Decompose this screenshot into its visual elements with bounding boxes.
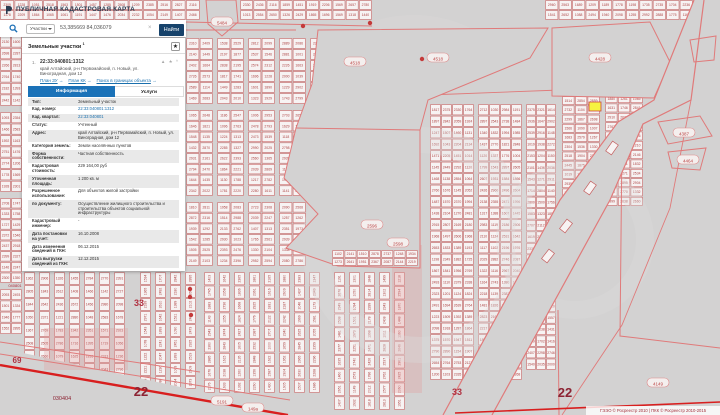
svg-text:2080: 2080 [282,259,290,263]
svg-text:2793: 2793 [264,124,272,128]
svg-text:2573: 2573 [202,75,210,79]
svg-text:2751: 2751 [2,150,10,154]
svg-text:2299: 2299 [565,117,573,121]
svg-text:2133: 2133 [220,227,228,231]
svg-text:2052: 2052 [465,188,473,192]
svg-text:2330: 2330 [243,3,251,7]
svg-text:1934: 1934 [408,252,416,256]
svg-text:2984: 2984 [502,108,510,112]
svg-text:2854: 2854 [577,99,585,103]
svg-text:2870: 2870 [202,146,210,150]
svg-text:1198: 1198 [629,3,636,7]
svg-text:1686: 1686 [313,382,317,390]
svg-text:2904: 2904 [633,181,641,185]
svg-text:1538: 1538 [220,42,228,46]
svg-text:1362: 1362 [26,277,34,281]
svg-text:1893: 1893 [174,353,178,361]
svg-text:2280: 2280 [251,189,259,193]
svg-text:1546: 1546 [13,233,21,237]
svg-text:2574: 2574 [251,64,259,68]
svg-text:1765: 1765 [251,238,259,242]
svg-text:1951: 1951 [398,399,402,407]
svg-text:1642: 1642 [159,314,163,322]
svg-text:2112: 2112 [537,224,544,228]
svg-text:1392: 1392 [238,382,242,390]
svg-text:1262: 1262 [295,216,303,220]
svg-text:1904: 1904 [283,369,287,377]
svg-text:2338: 2338 [465,280,473,284]
svg-text:2209: 2209 [18,13,26,17]
svg-text:2610: 2610 [159,301,163,309]
svg-text:1676: 1676 [443,188,451,192]
svg-text:1103: 1103 [443,372,450,376]
svg-text:2518: 2518 [565,154,573,158]
svg-text:2598: 2598 [393,241,404,246]
svg-text:2481: 2481 [465,211,473,215]
svg-text:1350: 1350 [13,276,21,280]
svg-text:1030: 1030 [491,108,499,112]
svg-text:2988: 2988 [233,216,241,220]
svg-text:2149: 2149 [189,259,197,263]
svg-text:2102: 2102 [189,301,193,309]
svg-text:1124: 1124 [454,292,461,296]
svg-text:2764: 2764 [2,75,10,79]
svg-text:2698: 2698 [590,117,598,121]
svg-text:2034: 2034 [118,13,126,17]
svg-text:1668: 1668 [238,302,242,310]
svg-text:1393: 1393 [13,87,21,91]
svg-text:1007: 1007 [590,127,598,131]
svg-text:2110: 2110 [480,234,487,238]
svg-text:1919: 1919 [309,3,317,7]
svg-text:1392: 1392 [454,315,462,319]
svg-text:1500: 1500 [537,201,545,205]
svg-text:69: 69 [13,356,22,365]
svg-text:1932: 1932 [353,399,357,407]
svg-text:2930: 2930 [220,238,228,242]
svg-text:2393: 2393 [233,157,241,161]
svg-text:2814: 2814 [368,289,372,297]
svg-text:2010: 2010 [233,97,241,101]
svg-text:2589: 2589 [189,86,197,90]
svg-text:2039: 2039 [251,167,259,171]
svg-text:1146: 1146 [2,265,9,269]
svg-text:1221: 1221 [56,316,64,320]
svg-text:1741: 1741 [233,75,241,79]
svg-text:2090: 2090 [282,206,290,210]
svg-text:1592: 1592 [2,139,10,143]
svg-text:2625: 2625 [298,329,302,337]
svg-text:1510: 1510 [359,252,367,256]
svg-text:1110: 1110 [443,280,450,284]
svg-text:2180: 2180 [174,288,178,296]
svg-text:2377: 2377 [338,344,342,352]
svg-text:2355: 2355 [491,200,499,204]
svg-text:1440: 1440 [362,13,370,17]
svg-text:1333: 1333 [2,212,10,216]
svg-text:1148: 1148 [547,131,554,135]
svg-text:2247: 2247 [13,265,21,269]
svg-text:1622: 1622 [268,356,272,364]
svg-text:2763: 2763 [233,124,241,128]
svg-text:1222: 1222 [144,353,148,361]
svg-text:1509: 1509 [443,315,451,319]
svg-text:2232: 2232 [132,13,140,17]
svg-text:1000: 1000 [268,342,272,350]
svg-text:1581: 1581 [313,315,317,323]
svg-text:2187: 2187 [283,302,287,310]
svg-text:1821: 1821 [202,124,210,128]
svg-text:1270: 1270 [454,211,462,215]
svg-text:2449: 2449 [443,165,451,169]
svg-text:2047: 2047 [159,353,163,361]
svg-text:33: 33 [452,387,462,397]
svg-text:1340: 1340 [480,131,488,135]
svg-text:2743: 2743 [491,280,499,284]
svg-text:1758: 1758 [13,212,21,216]
svg-text:1257: 1257 [282,216,290,220]
svg-text:1145: 1145 [454,188,461,192]
svg-text:1326: 1326 [56,277,64,281]
svg-text:1743: 1743 [282,97,290,101]
svg-text:2221: 2221 [144,366,148,374]
svg-text:2577: 2577 [383,385,387,393]
svg-text:1476: 1476 [103,13,111,17]
svg-text:1327: 1327 [233,146,241,150]
svg-text:4387: 4387 [679,131,690,136]
svg-text:1890: 1890 [264,86,272,90]
svg-text:2910: 2910 [608,116,616,120]
svg-text:2657: 2657 [348,3,356,7]
svg-text:1407: 1407 [175,13,183,17]
svg-text:1663: 1663 [295,64,303,68]
svg-text:2116: 2116 [269,3,276,7]
svg-text:1569: 1569 [335,13,343,17]
svg-text:1191: 1191 [338,275,342,282]
svg-text:1905: 1905 [283,382,287,390]
svg-text:1193: 1193 [465,246,472,250]
svg-text:2272: 2272 [547,143,555,147]
svg-text:1228: 1228 [264,75,272,79]
svg-text:2992: 2992 [642,13,650,17]
svg-text:1985: 1985 [513,131,521,135]
svg-text:1449: 1449 [220,86,228,90]
svg-text:1484: 1484 [513,120,521,124]
svg-text:1740: 1740 [13,75,21,79]
svg-text:2169: 2169 [454,223,462,227]
svg-text:2493: 2493 [432,280,440,284]
svg-text:2165: 2165 [268,275,272,283]
svg-text:2391: 2391 [116,277,124,281]
svg-text:2101: 2101 [527,166,535,170]
svg-text:1616: 1616 [268,288,272,296]
svg-text:2144: 2144 [396,260,404,264]
svg-text:1499: 1499 [383,275,387,283]
svg-text:2889: 2889 [282,42,290,46]
svg-text:1821: 1821 [502,142,510,146]
svg-text:2059: 2059 [454,120,462,124]
svg-text:1644: 1644 [189,178,197,182]
svg-text:2882: 2882 [491,257,499,261]
svg-text:2943: 2943 [208,329,212,337]
svg-text:2130: 2130 [2,40,10,44]
svg-text:2099: 2099 [264,42,272,46]
svg-text:1416: 1416 [547,339,555,343]
svg-text:1936: 1936 [527,120,535,124]
svg-text:1408: 1408 [71,290,79,294]
svg-text:1466: 1466 [86,290,94,294]
svg-text:2371: 2371 [41,316,49,320]
svg-text:2408: 2408 [383,316,387,324]
svg-text:2918: 2918 [13,244,21,248]
svg-text:1864: 1864 [220,167,228,171]
svg-text:2609: 2609 [283,288,287,296]
svg-text:4464: 4464 [683,158,694,163]
svg-text:2740: 2740 [353,358,357,366]
svg-text:1466: 1466 [2,127,10,131]
svg-text:1514: 1514 [565,99,573,103]
svg-text:1843: 1843 [41,290,49,294]
svg-text:2622: 2622 [220,157,228,161]
svg-text:2494: 2494 [588,13,596,17]
svg-text:2537: 2537 [251,53,259,57]
svg-text:2138: 2138 [480,200,488,204]
svg-text:1756: 1756 [547,201,555,205]
svg-text:2361: 2361 [253,288,257,296]
svg-text:2310: 2310 [189,42,197,46]
svg-text:1951: 1951 [359,260,367,264]
svg-text:2206: 2206 [322,3,330,7]
svg-text:2639: 2639 [454,303,462,307]
svg-text:1209: 1209 [588,3,596,7]
svg-text:2000: 2000 [547,362,555,366]
svg-text:1234: 1234 [220,259,228,263]
svg-text:2925: 2925 [253,302,257,310]
svg-text:1747: 1747 [13,202,21,206]
svg-text:2387: 2387 [253,329,257,337]
svg-text:2712: 2712 [480,108,488,112]
svg-text:2723: 2723 [251,206,259,210]
svg-text:1696: 1696 [251,75,259,79]
svg-text:2869: 2869 [264,167,272,171]
svg-text:2554: 2554 [256,13,264,17]
svg-text:1050: 1050 [353,289,357,297]
svg-text:2304: 2304 [565,145,573,149]
svg-text:1102: 1102 [334,252,341,256]
svg-text:2323: 2323 [432,292,440,296]
svg-text:2782: 2782 [264,178,272,182]
svg-text:2342: 2342 [189,189,197,193]
svg-text:1255: 1255 [223,315,227,323]
svg-text:1140: 1140 [547,189,554,193]
svg-text:2221: 2221 [233,167,241,171]
svg-text:1831: 1831 [268,302,272,310]
svg-text:2915: 2915 [432,223,440,227]
svg-text:2476: 2476 [233,248,241,252]
svg-text:2881: 2881 [282,53,290,57]
svg-text:2247: 2247 [264,216,272,220]
svg-text:1149: 1149 [353,386,357,393]
svg-text:1163: 1163 [13,139,20,143]
svg-text:2029: 2029 [480,257,488,261]
svg-text:1114: 1114 [203,86,210,90]
svg-text:2372: 2372 [2,233,10,237]
svg-text:1283: 1283 [233,86,241,90]
svg-text:1541: 1541 [548,13,556,17]
svg-text:33: 33 [134,298,144,308]
svg-text:2953: 2953 [264,114,272,118]
svg-text:2301: 2301 [13,185,21,189]
svg-text:1198: 1198 [432,257,439,261]
svg-text:2753: 2753 [454,361,462,365]
svg-text:1365: 1365 [144,288,148,296]
svg-text:4149: 4149 [653,381,664,386]
svg-text:1186: 1186 [220,114,227,118]
svg-text:1456: 1456 [86,303,94,307]
svg-text:1365: 1365 [264,157,272,161]
svg-text:2827: 2827 [175,3,183,7]
svg-text:2736: 2736 [223,302,227,310]
svg-text:2648: 2648 [202,114,210,118]
svg-text:1301: 1301 [353,275,357,283]
svg-text:1145: 1145 [432,165,439,169]
svg-text:1054: 1054 [146,13,154,17]
svg-text:2321: 2321 [537,108,545,112]
svg-text:2373: 2373 [189,379,193,387]
svg-text:2971: 2971 [144,314,148,322]
svg-text:2612: 2612 [56,290,64,294]
svg-text:1601: 1601 [251,86,259,90]
svg-text:2427: 2427 [238,329,242,337]
svg-text:1088: 1088 [575,13,583,17]
svg-text:2842: 2842 [443,120,451,124]
svg-text:2547: 2547 [233,114,241,118]
svg-text:2141: 2141 [347,252,355,256]
svg-text:2707: 2707 [268,329,272,337]
svg-text:2086: 2086 [295,42,303,46]
svg-text:1204: 1204 [537,154,545,158]
svg-text:1635: 1635 [338,358,342,366]
svg-text:2579: 2579 [577,136,585,140]
svg-text:2805: 2805 [26,290,34,294]
svg-text:2104: 2104 [443,211,451,215]
svg-text:1647: 1647 [537,120,545,124]
svg-text:1746: 1746 [620,106,628,110]
svg-text:1611: 1611 [265,189,272,193]
svg-text:1229: 1229 [282,86,290,90]
svg-text:1322: 1322 [480,269,488,273]
svg-text:2842: 2842 [174,275,178,283]
svg-text:1683: 1683 [565,136,573,140]
svg-text:2931: 2931 [189,157,197,161]
svg-text:1317: 1317 [480,211,488,215]
svg-text:2219: 2219 [408,260,416,264]
svg-text:2760: 2760 [432,188,440,192]
svg-text:1939: 1939 [189,227,197,231]
svg-text:2737: 2737 [384,252,392,256]
svg-text:1542: 1542 [189,238,197,242]
svg-text:1818: 1818 [368,399,372,407]
svg-text:2895: 2895 [13,327,21,331]
svg-text:2653: 2653 [432,246,440,250]
svg-text:2534: 2534 [633,172,641,176]
svg-text:1065: 1065 [189,114,197,118]
svg-text:2083: 2083 [233,206,241,210]
svg-text:1566: 1566 [565,127,573,131]
svg-text:2182: 2182 [2,87,10,91]
svg-text:2563: 2563 [561,3,569,7]
svg-text:2343: 2343 [383,303,387,311]
svg-text:1786: 1786 [368,372,372,380]
svg-text:1451: 1451 [296,3,304,7]
svg-text:2087: 2087 [384,260,392,264]
svg-text:2402: 2402 [189,64,197,68]
svg-text:1548: 1548 [189,135,197,139]
svg-text:1191: 1191 [513,108,520,112]
svg-text:1543: 1543 [144,327,148,335]
svg-text:2251: 2251 [353,344,357,352]
svg-text:2902: 2902 [295,86,303,90]
svg-text:2807: 2807 [443,223,451,227]
svg-text:2652: 2652 [561,13,569,17]
svg-text:1569: 1569 [335,3,343,7]
svg-text:4518: 4518 [350,60,361,65]
svg-text:2478: 2478 [251,124,259,128]
svg-text:2093: 2093 [2,293,10,297]
svg-text:2407: 2407 [527,351,535,355]
svg-text:1116: 1116 [491,269,498,273]
svg-text:1389: 1389 [465,315,473,319]
svg-text:1642: 1642 [223,275,227,283]
svg-text:1521: 1521 [174,314,178,322]
svg-text:2525: 2525 [202,248,210,252]
svg-text:4428: 4428 [595,56,606,61]
svg-text:2039: 2039 [251,216,259,220]
svg-text:1164: 1164 [480,280,487,284]
svg-text:2698: 2698 [2,52,10,56]
svg-text:2351: 2351 [282,227,290,231]
svg-text:2466: 2466 [189,13,197,17]
svg-text:2379: 2379 [454,280,462,284]
svg-text:1267: 1267 [590,136,598,140]
svg-text:2473: 2473 [189,327,193,335]
svg-text:1330: 1330 [251,248,259,252]
svg-text:2375: 2375 [443,108,451,112]
svg-text:1776: 1776 [502,154,510,158]
svg-text:1735: 1735 [642,3,650,7]
svg-text:2012: 2012 [368,385,372,393]
svg-text:1302: 1302 [383,289,387,297]
svg-text:1150: 1150 [547,154,554,158]
svg-text:1973: 1973 [295,227,303,231]
svg-text:1848: 1848 [368,275,372,283]
svg-text:2035: 2035 [537,362,545,366]
svg-text:1389: 1389 [174,301,178,309]
svg-text:2493: 2493 [13,293,21,297]
svg-text:1141: 1141 [282,189,289,193]
svg-text:1447: 1447 [89,13,97,17]
svg-text:2393: 2393 [220,248,228,252]
svg-text:1078: 1078 [144,340,148,348]
svg-text:2516: 2516 [161,3,169,7]
svg-text:1946: 1946 [2,315,10,319]
svg-text:1880: 1880 [283,275,287,283]
svg-text:1435: 1435 [202,178,210,182]
svg-text:2939: 2939 [282,238,290,242]
svg-text:2799: 2799 [295,97,303,101]
svg-text:1318: 1318 [348,13,356,17]
svg-text:2769: 2769 [465,269,473,273]
